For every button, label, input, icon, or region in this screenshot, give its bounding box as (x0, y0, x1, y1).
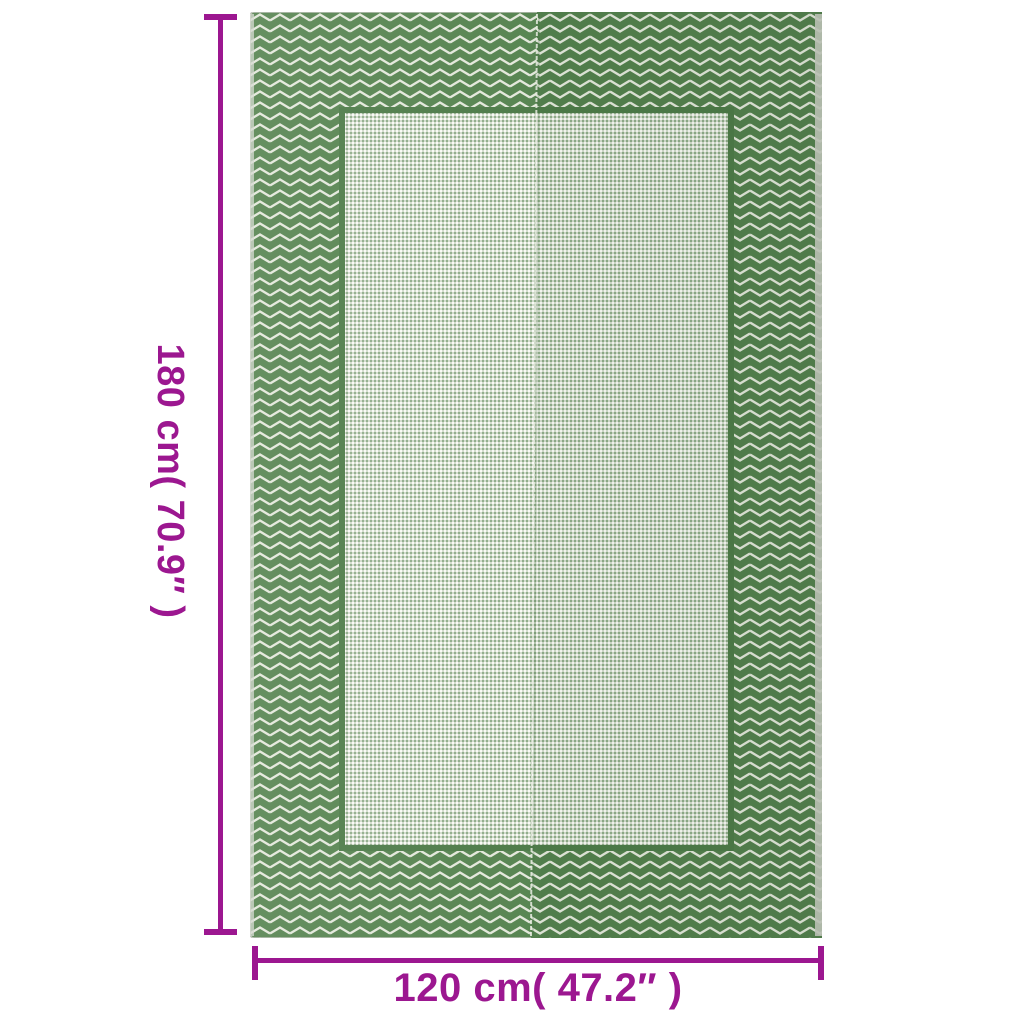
rug-graphic (250, 12, 822, 938)
rug-image (250, 12, 822, 938)
height-dimension-label: 180 cm( 70.9″ ) (148, 331, 192, 631)
height-dimension-bottom-cap (204, 929, 237, 935)
rug-shading-overlay (250, 12, 822, 938)
product-dimension-diagram: 180 cm( 70.9″ ) 120 cm( 47.2″ ) (0, 0, 1024, 1024)
width-dimension-label: 120 cm( 47.2″ ) (252, 966, 824, 1010)
height-dimension-top-cap (204, 14, 237, 20)
height-dimension-line (218, 14, 223, 935)
width-dimension-line (252, 958, 824, 963)
